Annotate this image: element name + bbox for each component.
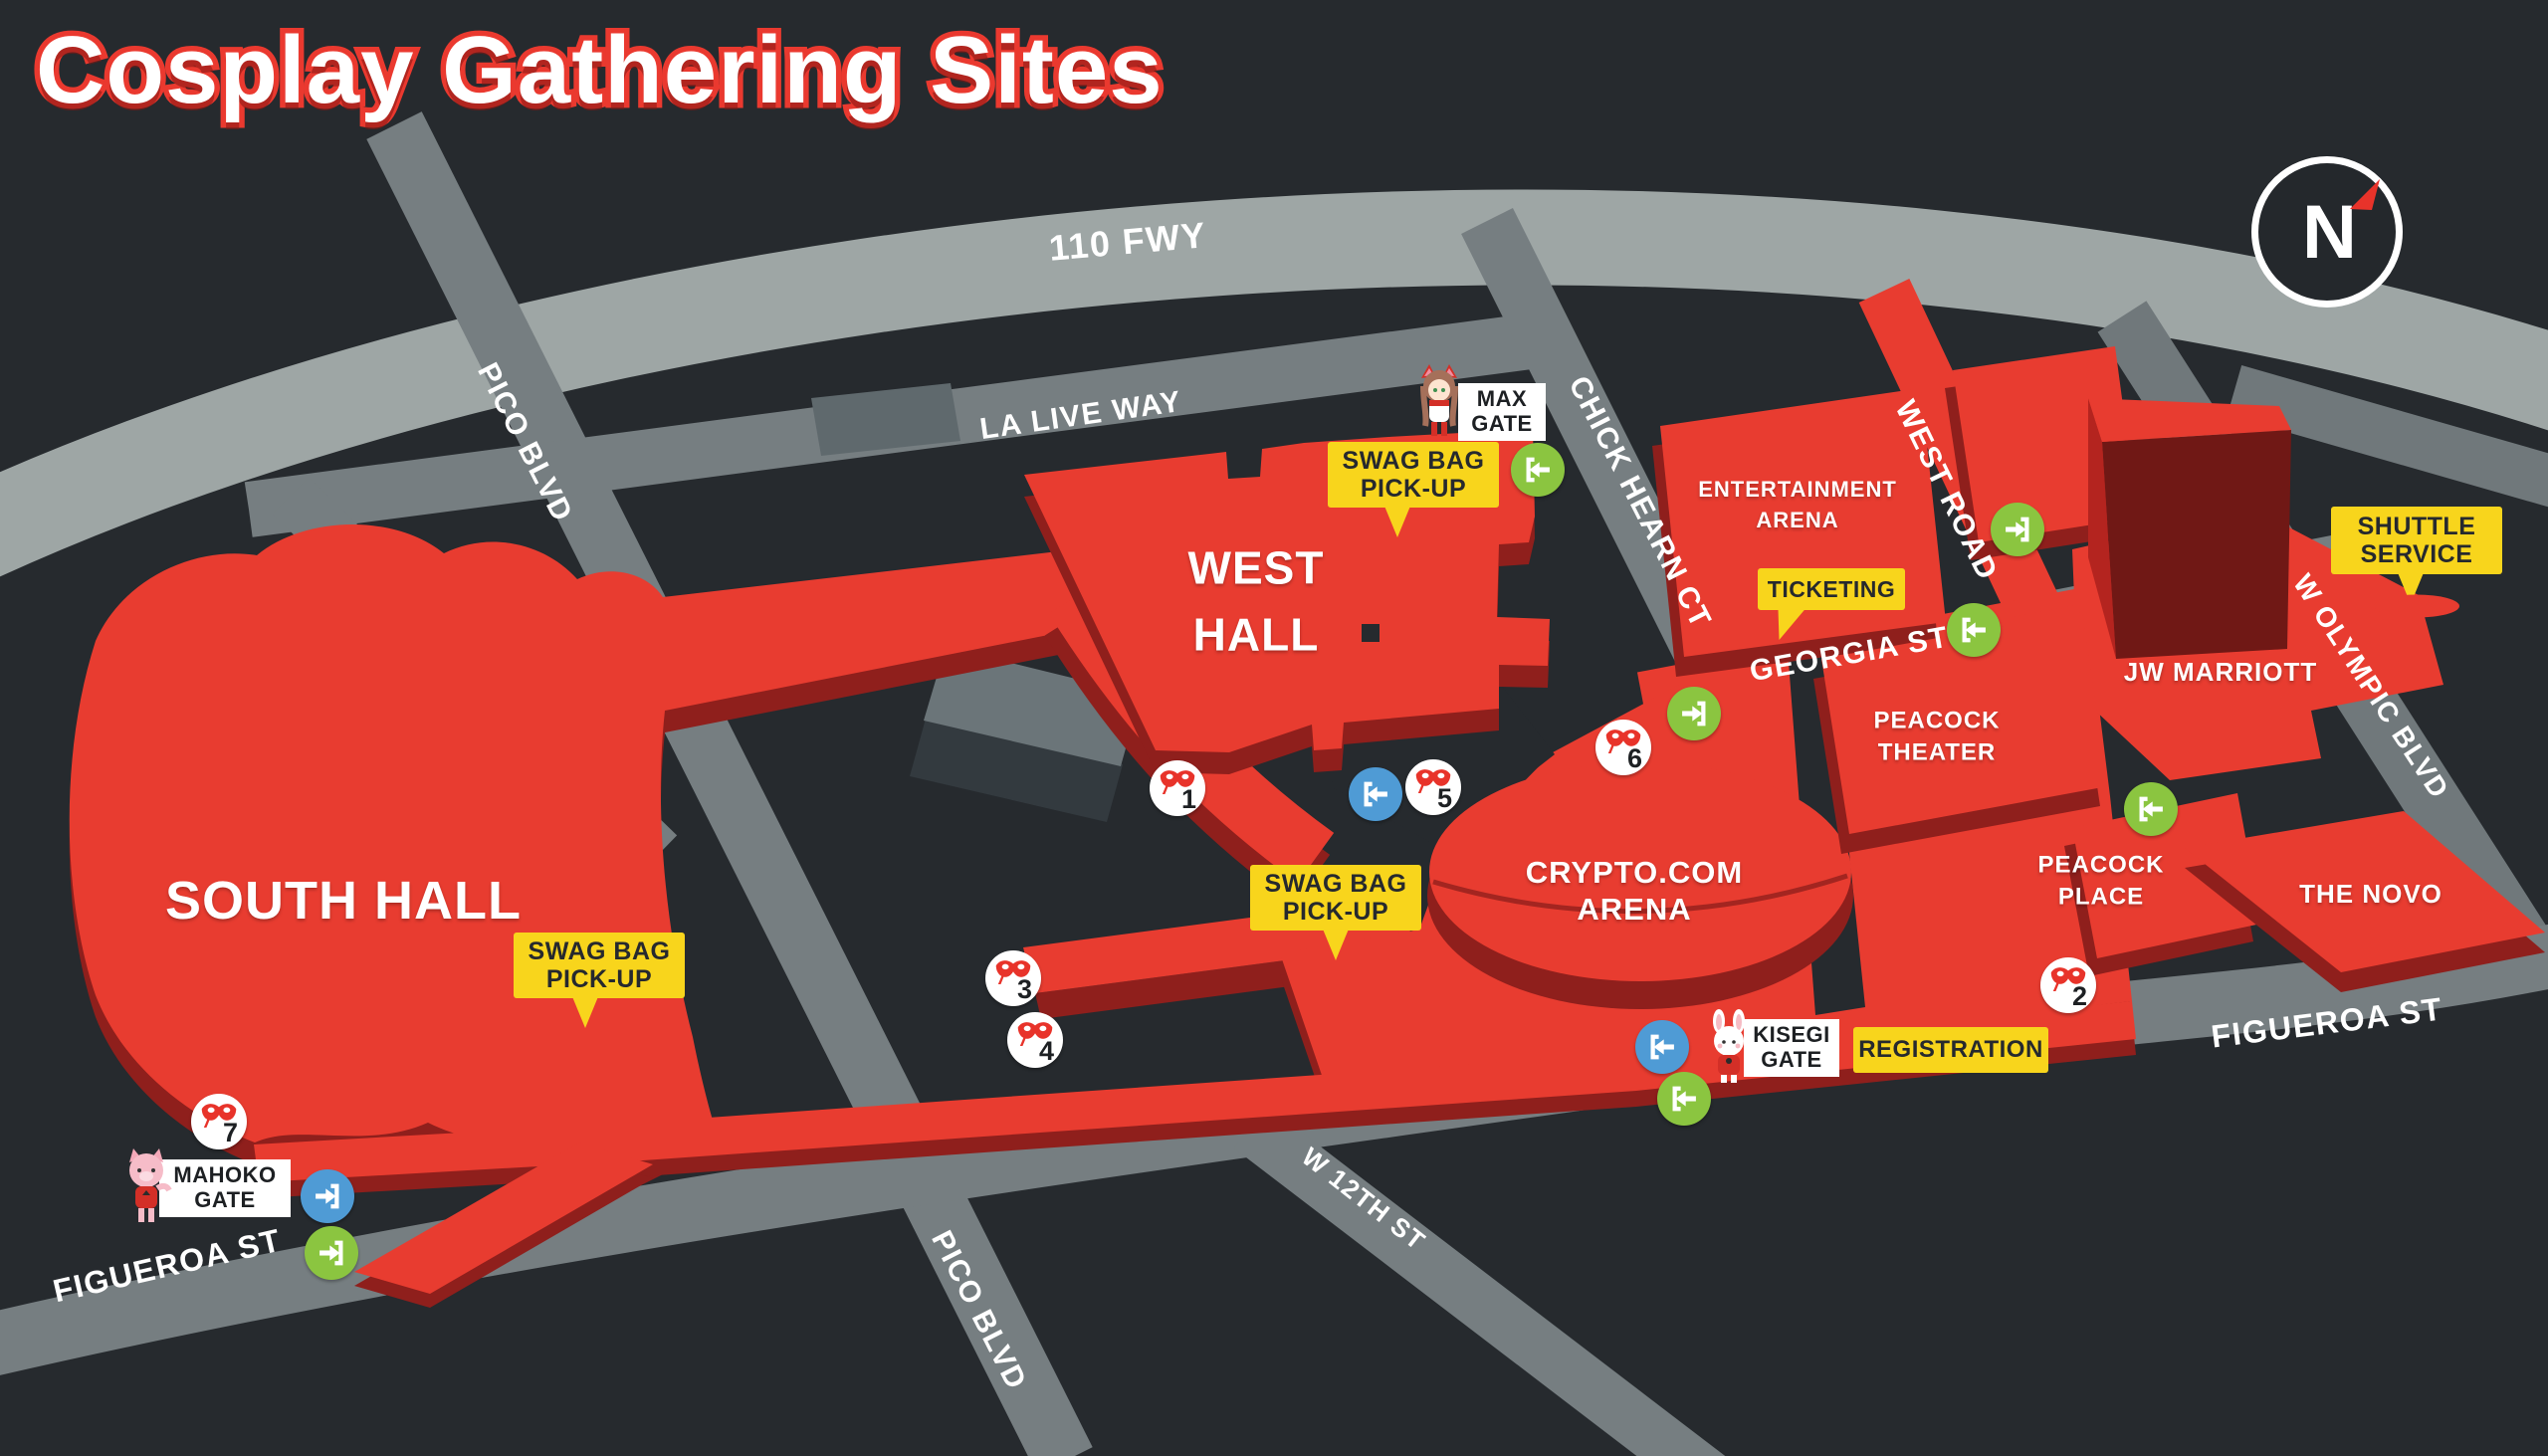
marker-number: 6 <box>1627 743 1642 774</box>
marker-number: 7 <box>223 1118 238 1148</box>
kisegi-gate-character-icon <box>1706 1009 1752 1083</box>
entrance-enter-right-icon-mahoko-green <box>305 1226 358 1280</box>
entrance-enter-left-icon-kisegi-green <box>1657 1072 1711 1126</box>
marker-number: 4 <box>1039 1036 1054 1067</box>
building-label-entertainment-arena: ENTERTAINMENT ARENA <box>1698 475 1897 536</box>
callout-swag-bag-south: SWAG BAG PICK-UP <box>514 933 685 998</box>
gate-label-kisegi: KISEGI GATE <box>1744 1019 1839 1077</box>
callout-swag-bag-max-text: SWAG BAG PICK-UP <box>1343 447 1485 504</box>
marker-number: 5 <box>1437 783 1452 814</box>
callout-swag-bag-south-text: SWAG BAG PICK-UP <box>529 937 671 994</box>
shuttle-stop-spot <box>2374 595 2459 618</box>
west-hall-notch <box>1362 624 1380 642</box>
entrance-enter-left-icon-georgia-st <box>1947 603 2001 657</box>
callout-ticketing-text: TICKETING <box>1768 576 1895 602</box>
page-title: Cosplay Gathering Sites <box>36 16 1164 125</box>
building-label-west-hall: WEST HALL <box>1188 534 1325 667</box>
building-label-south-hall: SOUTH HALL <box>165 862 522 939</box>
callout-registration: REGISTRATION <box>1853 1027 2048 1073</box>
gathering-site-marker-5: 5 <box>1405 759 1461 815</box>
callout-shuttle-service-text: SHUTTLE SERVICE <box>2358 513 2476 569</box>
marker-number: 2 <box>2072 981 2087 1012</box>
callout-registration-text: REGISTRATION <box>1858 1036 2043 1063</box>
gate-label-max: MAX GATE <box>1458 383 1546 441</box>
callout-pointer <box>1383 504 1411 537</box>
max-gate-character-icon <box>1413 364 1465 440</box>
entrance-enter-right-icon-arena-plaza <box>1667 687 1721 740</box>
gathering-site-marker-1: 1 <box>1150 760 1205 816</box>
building-label-peacock-theater: PEACOCK THEATER <box>1873 706 2000 770</box>
entrance-enter-right-icon-mahoko-blue <box>301 1169 354 1223</box>
callout-swag-bag-max: SWAG BAG PICK-UP <box>1328 442 1499 508</box>
building-label-crypto-arena: CRYPTO.COM ARENA <box>1526 854 1743 928</box>
marker-number: 3 <box>1017 974 1032 1005</box>
gathering-site-marker-6: 6 <box>1595 720 1651 775</box>
compass-needle-icon <box>2348 177 2382 211</box>
entrance-enter-left-icon-max-gate <box>1511 443 1565 497</box>
gathering-site-marker-3: 3 <box>985 950 1041 1006</box>
callout-swag-bag-center-text: SWAG BAG PICK-UP <box>1265 870 1407 927</box>
building-label-the-novo: THE NOVO <box>2299 876 2442 914</box>
mahoko-gate-character-icon <box>119 1146 173 1226</box>
marker-number: 1 <box>1181 784 1196 815</box>
map-canvas <box>0 0 2548 1456</box>
callout-swag-bag-center: SWAG BAG PICK-UP <box>1250 865 1421 931</box>
callout-pointer <box>1322 927 1350 960</box>
gathering-site-marker-7: 7 <box>191 1094 247 1149</box>
building-label-peacock-place: PEACOCK PLACE <box>2037 850 2164 915</box>
gathering-site-marker-4: 4 <box>1007 1012 1063 1068</box>
callout-shuttle-service: SHUTTLE SERVICE <box>2331 507 2502 574</box>
callout-ticketing: TICKETING <box>1758 568 1905 610</box>
gate-label-mahoko: MAHOKO GATE <box>159 1159 291 1217</box>
cosplay-gathering-map: Cosplay Gathering Sites N 110 FWY LA LIV… <box>0 0 2548 1456</box>
callout-pointer <box>571 994 599 1028</box>
gathering-site-marker-2: 2 <box>2040 957 2096 1013</box>
entrance-enter-left-icon-kisegi-blue <box>1635 1020 1689 1074</box>
jw-tower <box>2102 430 2291 659</box>
entrance-enter-left-icon-peacock-place <box>2124 782 2178 836</box>
entrance-enter-right-icon-west-road <box>1991 503 2044 556</box>
entrance-enter-left-icon-west-hall-south <box>1349 767 1402 821</box>
building-label-jw-marriott: JW MARRIOTT <box>2124 654 2317 692</box>
compass: N <box>2251 156 2403 308</box>
